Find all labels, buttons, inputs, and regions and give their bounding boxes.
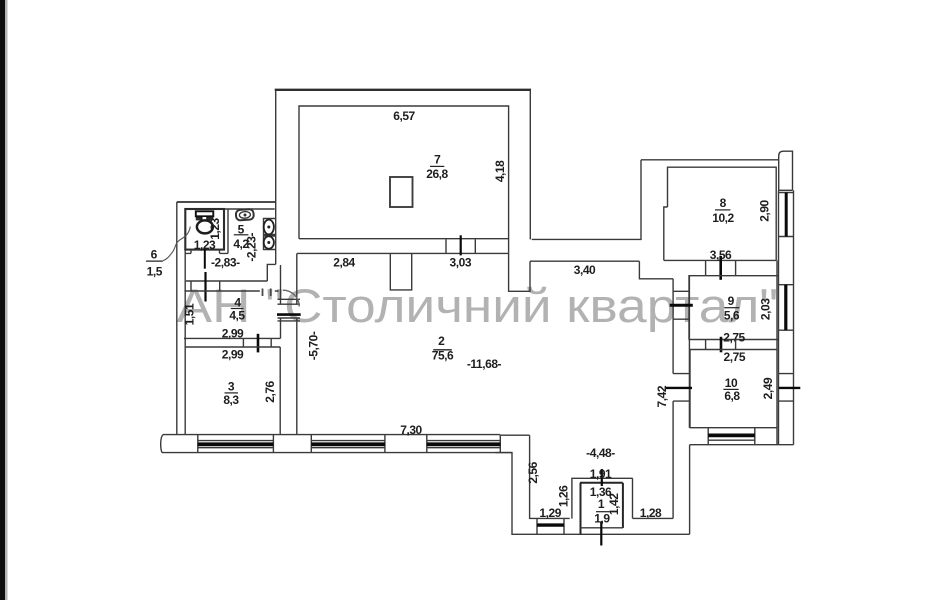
svg-text:2,76: 2,76 <box>263 380 277 402</box>
svg-text:1,5: 1,5 <box>147 265 163 279</box>
svg-text:7: 7 <box>434 153 441 167</box>
svg-text:3: 3 <box>228 379 235 393</box>
svg-text:2,75: 2,75 <box>723 331 745 345</box>
svg-text:1: 1 <box>598 497 605 511</box>
svg-text:6,57: 6,57 <box>393 109 415 123</box>
svg-text:9: 9 <box>728 294 735 308</box>
svg-text:2,03: 2,03 <box>759 298 773 320</box>
svg-text:2,49: 2,49 <box>761 377 775 399</box>
svg-text:4,18: 4,18 <box>493 160 507 182</box>
svg-text:2,75: 2,75 <box>724 350 746 364</box>
svg-text:8: 8 <box>720 196 727 210</box>
svg-text:6: 6 <box>151 247 158 261</box>
svg-text:1,42: 1,42 <box>607 493 621 515</box>
svg-text:3,40: 3,40 <box>574 263 596 277</box>
svg-text:2,90: 2,90 <box>757 199 771 221</box>
svg-text:10: 10 <box>725 376 738 390</box>
svg-text:-4,48-: -4,48- <box>586 446 615 460</box>
svg-text:7,42: 7,42 <box>655 385 669 407</box>
svg-text:2,84: 2,84 <box>333 255 355 269</box>
svg-text:5,6: 5,6 <box>724 309 740 323</box>
svg-text:1,51: 1,51 <box>183 303 197 325</box>
svg-text:26,8: 26,8 <box>426 167 448 181</box>
svg-text:1,23: 1,23 <box>194 238 216 252</box>
svg-text:2: 2 <box>438 334 445 348</box>
svg-text:-11,68-: -11,68- <box>467 357 502 371</box>
svg-text:-2,83-: -2,83- <box>211 255 240 269</box>
svg-text:10,2: 10,2 <box>712 211 734 225</box>
svg-text:-2,23-: -2,23- <box>245 233 259 262</box>
svg-text:4,5: 4,5 <box>229 309 245 323</box>
svg-text:1,91: 1,91 <box>590 467 612 481</box>
svg-text:4: 4 <box>234 295 241 309</box>
svg-text:3,03: 3,03 <box>450 256 472 270</box>
svg-text:7,30: 7,30 <box>400 423 422 437</box>
svg-text:6,8: 6,8 <box>724 389 740 403</box>
svg-text:8,3: 8,3 <box>223 393 239 407</box>
svg-text:1,23: 1,23 <box>208 217 222 239</box>
svg-text:2,99: 2,99 <box>222 347 244 361</box>
svg-text:2,56: 2,56 <box>526 461 540 483</box>
svg-text:1,26: 1,26 <box>556 485 570 507</box>
svg-text:-5,70-: -5,70- <box>307 331 321 360</box>
svg-text:75,6: 75,6 <box>432 348 454 362</box>
